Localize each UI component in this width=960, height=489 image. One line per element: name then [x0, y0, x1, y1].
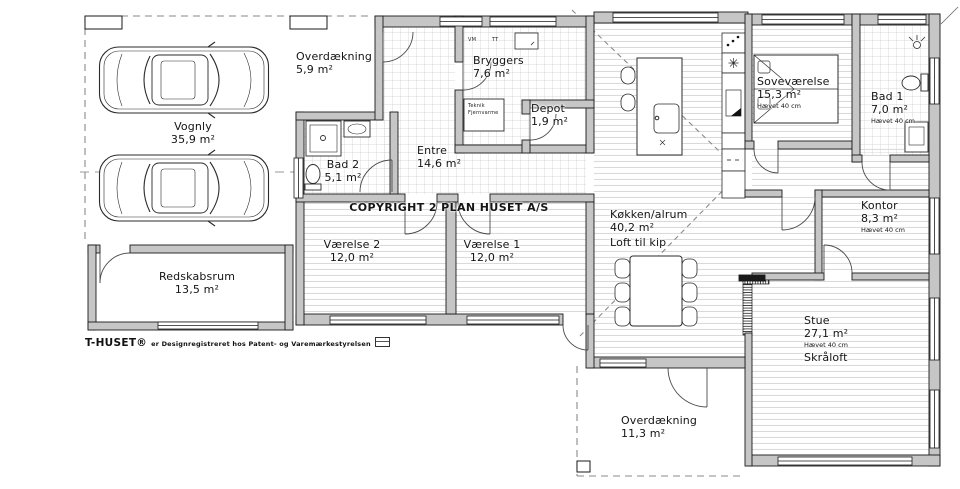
sink-icon	[905, 122, 928, 152]
room-label-stue: Stue 27,1 m² Hævet 40 cm Skråloft	[804, 315, 848, 365]
terrace-post	[577, 461, 590, 472]
fan-icon	[729, 58, 739, 68]
window	[613, 13, 718, 22]
toilet-icon	[305, 165, 321, 191]
floor-plan: Overdækning 5,9 m² Vognly 35,9 m² Bad 2 …	[0, 0, 960, 489]
carport-post	[290, 16, 327, 29]
room-label-overdaekning-nw: Overdækning 5,9 m²	[296, 51, 372, 77]
window	[930, 58, 939, 104]
legend-box-icon	[375, 337, 390, 347]
room-label-bryggers: Bryggers 7,6 m²	[473, 55, 524, 81]
window	[930, 390, 939, 448]
window	[930, 198, 939, 254]
window	[490, 17, 556, 26]
window	[930, 298, 939, 360]
room-label-kontor: Kontor 8,3 m² Hævet 40 cm	[861, 200, 905, 235]
appliance-counter	[515, 33, 538, 49]
brand-name: T-HUSET®	[85, 337, 147, 349]
car-icon	[100, 42, 269, 118]
floor-livingroom	[752, 280, 929, 455]
footer-registration: T-HUSET®er Designregistreret hos Patent-…	[85, 331, 390, 350]
room-label-koekken-alrum: Køkken/alrum 40,2 m² Loft til kip	[610, 209, 688, 250]
window	[467, 316, 559, 324]
shower-icon	[306, 121, 341, 156]
car-icon	[100, 150, 269, 226]
window	[330, 316, 426, 324]
window	[294, 158, 303, 198]
room-label-entre: Entre 14,6 m²	[417, 145, 461, 171]
room-label-bad1: Bad 1 7,0 m² Hævet 40 cm	[871, 91, 915, 126]
room-label-vaerelse1: Værelse 1 12,0 m²	[464, 239, 521, 265]
floor-hallway	[752, 148, 929, 190]
dining-table-icon	[615, 256, 697, 326]
room-label-redskabsrum: Redskabsrum 13,5 m²	[159, 271, 235, 297]
door-terrace	[668, 368, 707, 407]
floor-entre-east	[455, 153, 586, 194]
room-label-bad2: Bad 2 5,1 m²	[324, 159, 361, 185]
copyright-text: COPYRIGHT 2 PLAN HUSET A/S	[349, 201, 548, 214]
utility-box-label: Teknik Fjernvarme	[468, 103, 498, 116]
cabinet-column	[722, 33, 745, 198]
room-label-overdaekning-s: Overdækning 11,3 m²	[621, 415, 697, 441]
room-label-depot: Depot 1,9 m²	[531, 103, 568, 129]
carport-post	[85, 16, 122, 29]
door-garden	[563, 325, 588, 350]
dryer-label: TT	[492, 37, 498, 44]
room-label-vognly: Vognly 35,9 m²	[171, 121, 215, 147]
window	[600, 359, 646, 367]
door-shed	[100, 253, 130, 283]
floor-passage	[745, 197, 815, 273]
wall-stub	[739, 275, 765, 281]
washing-machine-label: VM	[468, 37, 476, 44]
window	[762, 15, 844, 24]
registration-text: er Designregistreret hos Patent- og Vare…	[151, 340, 371, 348]
window	[440, 17, 482, 26]
window	[158, 322, 258, 329]
hob-icon	[727, 44, 730, 47]
window	[778, 457, 912, 465]
roof-corner-line	[941, 7, 958, 24]
sink-icon	[344, 121, 370, 137]
window	[878, 15, 926, 24]
room-label-vaerelse2: Værelse 2 12,0 m²	[324, 239, 381, 265]
room-label-sovevaerelse: Soveværelse 15,3 m² Hævet 40 cm	[757, 76, 830, 111]
